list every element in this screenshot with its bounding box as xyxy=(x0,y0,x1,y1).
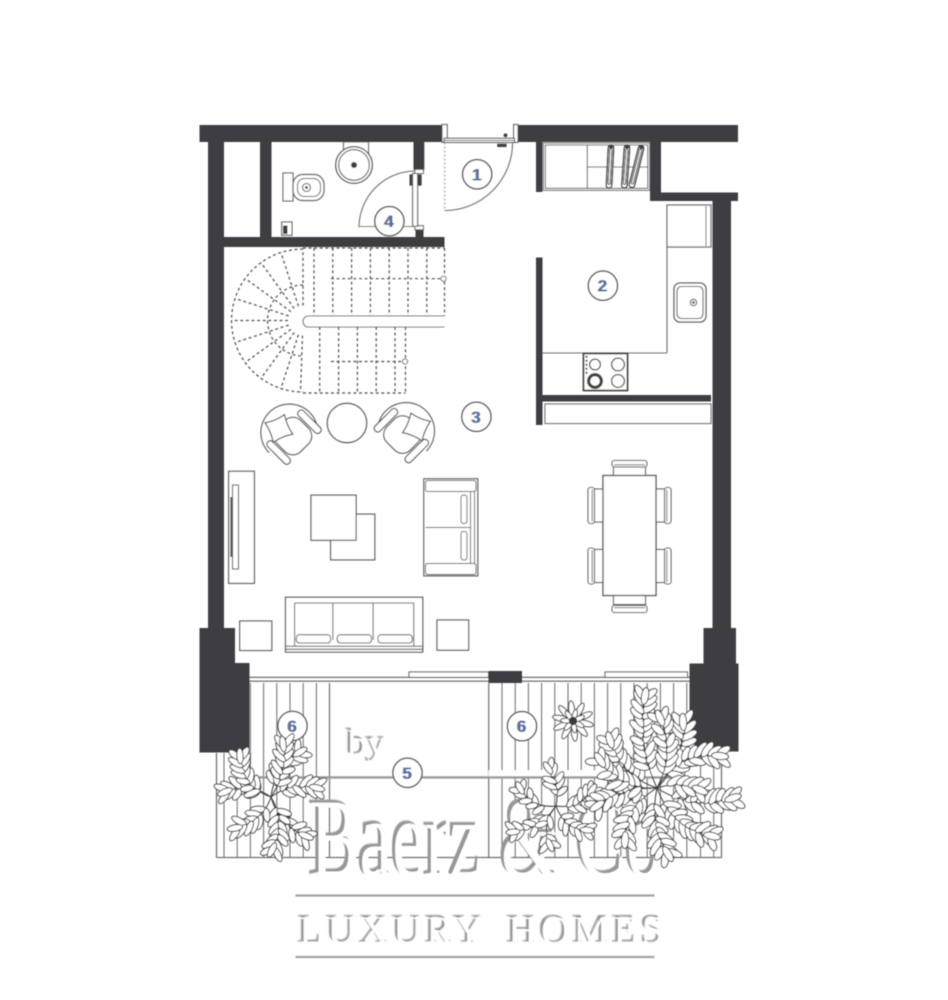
svg-text:4: 4 xyxy=(385,212,395,231)
svg-text:2: 2 xyxy=(598,277,607,296)
svg-text:LUXURY HOMES: LUXURY HOMES xyxy=(299,908,668,953)
svg-text:6: 6 xyxy=(517,717,526,736)
svg-text:6: 6 xyxy=(288,717,297,736)
svg-text:1: 1 xyxy=(472,165,481,184)
svg-text:3: 3 xyxy=(472,408,481,427)
svg-text:by: by xyxy=(348,725,387,764)
